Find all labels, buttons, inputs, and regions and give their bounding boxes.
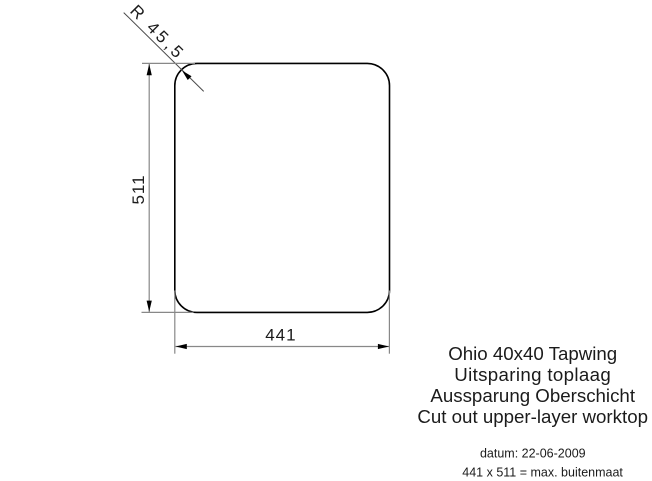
svg-text:Cut out upper-layer worktop: Cut out upper-layer worktop [417,406,648,427]
svg-text:441: 441 [265,325,296,344]
svg-text:441 x 511 = max. buitenmaat: 441 x 511 = max. buitenmaat [462,466,623,480]
svg-text:R 45,5: R 45,5 [126,1,189,64]
svg-text:Ohio 40x40 Tapwing: Ohio 40x40 Tapwing [448,343,617,364]
svg-text:datum: 22-06-2009: datum: 22-06-2009 [480,447,586,461]
svg-text:Aussparung Oberschicht: Aussparung Oberschicht [430,385,635,406]
svg-text:Uitsparing toplaag: Uitsparing toplaag [454,364,611,385]
svg-text:511: 511 [129,174,148,204]
